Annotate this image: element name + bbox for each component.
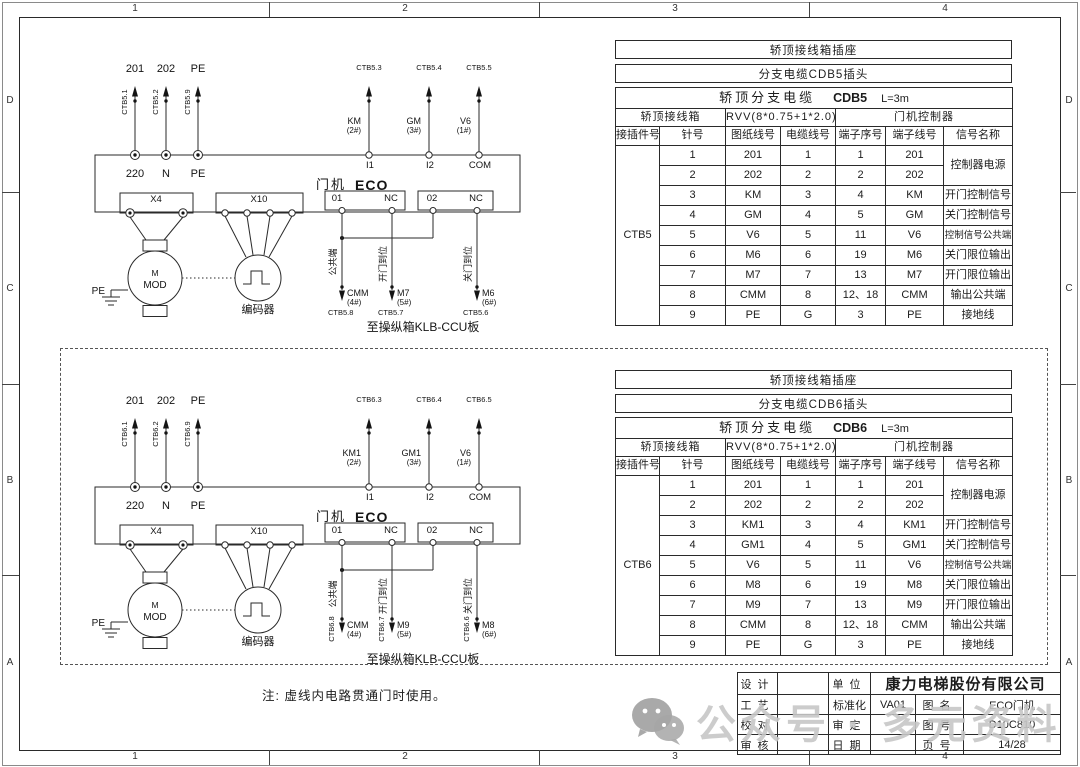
signal-pin: (3#)	[407, 126, 422, 135]
relay-terminal-label: 02	[427, 525, 438, 536]
output-pin: (5#)	[397, 630, 412, 639]
banner-plug: 分支电缆CDB5插头	[615, 64, 1012, 83]
usage-note: 注: 虚线内电路贯通门时使用。	[262, 685, 446, 704]
wire-id: CTB5.8	[328, 308, 353, 317]
table-cell: GM	[886, 206, 944, 226]
signal-label: GM	[407, 116, 422, 126]
table-cell: GM1	[726, 536, 781, 556]
input-terminal-label: I2	[426, 160, 434, 171]
zone-label: 1	[125, 3, 145, 14]
group-header: 门机控制器	[836, 439, 1013, 457]
table-cell: V6	[886, 226, 944, 246]
encoder-label: 编码器	[242, 302, 275, 316]
output-label: M7	[397, 288, 410, 298]
col-header: 图纸线号	[726, 457, 781, 476]
zone-label: 3	[665, 751, 685, 762]
table-cell: 6	[660, 246, 726, 266]
table-cell: KM	[726, 186, 781, 206]
cdb5-wiring-table: 轿顶分支电缆CDB5L=3m 轿顶接线箱 RVV(8*0.75+1*2.0) 门…	[615, 87, 1013, 326]
wire-id: CTB6.7	[377, 616, 386, 641]
cable-length: L=3m	[881, 423, 909, 435]
table-row: CTB5 1 201 1 1 201 控制器电源	[616, 146, 1013, 166]
table-cell: M7	[886, 266, 944, 286]
table-cell: 3	[836, 306, 886, 326]
table-cell: 2	[781, 496, 836, 516]
input-terminal-label: I2	[426, 492, 434, 503]
cable-length: L=3m	[881, 93, 909, 105]
up-arrow-icon	[195, 86, 201, 97]
field-value	[778, 735, 829, 755]
signal-label: V6	[460, 116, 471, 126]
col-header: 端子序号	[836, 457, 886, 476]
table-cell: 7	[660, 266, 726, 286]
connector-label: X4	[150, 194, 162, 205]
table-cell: M9	[886, 596, 944, 616]
table-cell: GM	[726, 206, 781, 226]
wire-id: CTB6.3	[356, 395, 381, 404]
drawing-name: ECO门机	[964, 695, 1061, 715]
motor-label: M	[151, 268, 158, 278]
table-cell: M6	[726, 246, 781, 266]
group-header: RVV(8*0.75+1*2.0)	[726, 439, 836, 457]
col-header: 针号	[660, 457, 726, 476]
signal-name-cell: 控制信号公共端	[944, 556, 1013, 576]
signal-name-cell: 关门控制信号	[944, 206, 1013, 226]
power-label: PE	[191, 395, 206, 407]
table-cell: 202	[886, 496, 944, 516]
function-label: 公共端	[327, 248, 338, 275]
table-title: 轿顶分支电缆	[719, 420, 815, 435]
col-header: 接插件号	[616, 127, 660, 146]
pe-label: PE	[92, 286, 106, 297]
signal-pin: (2#)	[347, 458, 362, 467]
relay-terminal-label: NC	[469, 525, 483, 536]
signal-label: KM1	[342, 448, 361, 458]
motor-model: MOD	[143, 280, 166, 291]
zone-tick	[2, 575, 19, 576]
field-value	[778, 715, 829, 735]
output-pin: (4#)	[347, 298, 362, 307]
encoder-icon	[225, 548, 292, 633]
signal-name-cell: 输出公共端	[944, 616, 1013, 636]
wire-id: CTB6.8	[327, 616, 336, 641]
machine-name: 门机	[316, 509, 346, 524]
cable-code: CDB5	[833, 91, 867, 105]
caption: 至操纵箱KLB-CCU板	[367, 319, 480, 334]
terminal-label: N	[162, 168, 170, 180]
table-cell: PE	[886, 306, 944, 326]
signal-name-cell: 开门限位输出	[944, 266, 1013, 286]
table-cell: 1	[781, 146, 836, 166]
field-label: 图名	[916, 695, 964, 715]
table-row: 8 CMM 8 12、18 CMM 输出公共端	[616, 616, 1013, 636]
up-arrow-icon	[426, 86, 432, 97]
table-cell: 201	[726, 476, 781, 496]
connector-label: X10	[251, 526, 268, 537]
table-cell: 6	[781, 246, 836, 266]
up-arrow-icon	[195, 418, 201, 429]
function-label: 开门到位	[377, 246, 388, 282]
col-header: 信号名称	[944, 127, 1013, 146]
banner-socket: 轿顶接线箱插座	[615, 370, 1012, 389]
wire-id: CTB5.7	[378, 308, 403, 317]
table-cell: 5	[836, 206, 886, 226]
table-cell: G	[781, 636, 836, 656]
table-cell: 3	[836, 636, 886, 656]
cable-code: CDB6	[833, 421, 867, 435]
input-terminal-label: I1	[366, 492, 374, 503]
table-cell: 8	[660, 616, 726, 636]
ground-icon	[102, 622, 128, 637]
machine-name: 门机	[316, 177, 346, 192]
table-row: 7 M9 7 13 M9 开门限位输出	[616, 596, 1013, 616]
signal-pin: (1#)	[457, 126, 472, 135]
function-label: 公共端	[327, 580, 338, 607]
zone-tick	[809, 2, 810, 17]
engineering-drawing-page: 1 2 3 4 1 2 3 4 D C B A D C B A 201 202 …	[0, 0, 1080, 767]
wire-id: CTB6.2	[151, 421, 160, 446]
zone-label: C	[1059, 283, 1079, 294]
table-cell: M9	[726, 596, 781, 616]
zone-label: 1	[125, 751, 145, 762]
signal-name-cell: 关门控制信号	[944, 536, 1013, 556]
signal-name-cell: 控制器电源	[944, 146, 1013, 186]
signal-name-cell: 控制器电源	[944, 476, 1013, 516]
wire-id: CTB6.5	[466, 395, 491, 404]
zone-label: A	[1059, 657, 1079, 668]
signal-label: GM1	[401, 448, 421, 458]
table-cell: 3	[660, 516, 726, 536]
table-row: 4 GM 4 5 GM 关门控制信号	[616, 206, 1013, 226]
table-cell: KM1	[726, 516, 781, 536]
field-value	[778, 673, 829, 695]
terminal-label: PE	[191, 500, 206, 512]
col-header: 针号	[660, 127, 726, 146]
table-cell: 201	[726, 146, 781, 166]
up-arrow-icon	[426, 418, 432, 429]
connector-label: X4	[150, 526, 162, 537]
signal-pin: (1#)	[457, 458, 472, 467]
col-header: 电缆线号	[781, 127, 836, 146]
title-block: 设计 单位 康力电梯股份有限公司 工艺 标准化 VA01 图名 ECO门机 校对…	[737, 672, 1061, 755]
zone-tick	[269, 2, 270, 17]
table-cell: 2	[660, 166, 726, 186]
table-cell: 1	[836, 476, 886, 496]
table-cell: 11	[836, 556, 886, 576]
table-cell: CMM	[886, 286, 944, 306]
table-cell: PE	[726, 636, 781, 656]
table-cell: V6	[886, 556, 944, 576]
table-row: 5 V6 5 11 V6 控制信号公共端	[616, 556, 1013, 576]
input-terminal-label: I1	[366, 160, 374, 171]
power-label: 202	[157, 63, 175, 75]
cdb5-table-group: 轿顶接线箱插座 分支电缆CDB5插头 轿顶分支电缆CDB5L=3m 轿顶接线箱 …	[615, 40, 1012, 326]
field-label: 审核	[738, 735, 778, 755]
output-label: M8	[482, 620, 495, 630]
signal-name-cell: 控制信号公共端	[944, 226, 1013, 246]
zone-tick	[1060, 384, 1076, 385]
table-row: 3 KM 3 4 KM 开门控制信号	[616, 186, 1013, 206]
up-arrow-icon	[132, 86, 138, 97]
table-row: 6 M6 6 19 M6 关门限位输出	[616, 246, 1013, 266]
field-value: VA01	[871, 695, 916, 715]
terminal-label: 220	[126, 500, 144, 512]
motor-model: MOD	[143, 612, 166, 623]
field-label: 设计	[738, 673, 778, 695]
table-cell: 1	[660, 476, 726, 496]
table-cell: 5	[781, 556, 836, 576]
table-cell: 13	[836, 266, 886, 286]
relay-terminal-label: NC	[469, 193, 483, 204]
zone-label: 2	[395, 3, 415, 14]
table-cell: 1	[660, 146, 726, 166]
table-row: 8 CMM 8 12、18 CMM 输出公共端	[616, 286, 1013, 306]
table-cell: 8	[781, 286, 836, 306]
table-row: 4 GM1 4 5 GM1 关门控制信号	[616, 536, 1013, 556]
field-value	[778, 695, 829, 715]
motor-icon	[128, 217, 183, 317]
power-label: 201	[126, 395, 144, 407]
col-header: 端子序号	[836, 127, 886, 146]
wiring-diagram-cdb6: 201 202 PE CTB6.1 CTB6.2 CTB6.9 220 N PE…	[55, 382, 545, 674]
relay-terminal-label: 02	[427, 193, 438, 204]
group-header: 轿顶接线箱	[616, 109, 726, 127]
down-arrow-icon	[389, 291, 395, 302]
up-arrow-icon	[366, 86, 372, 97]
signal-name-cell: 开门控制信号	[944, 186, 1013, 206]
field-label: 页号	[916, 735, 964, 755]
table-cell: PE	[886, 636, 944, 656]
banner-plug: 分支电缆CDB6插头	[615, 394, 1012, 413]
down-arrow-icon	[339, 623, 345, 634]
zone-label: A	[0, 657, 20, 668]
caption: 至操纵箱KLB-CCU板	[367, 651, 480, 666]
table-cell: 4	[660, 536, 726, 556]
table-cell: 8	[660, 286, 726, 306]
cdb6-wiring-table: 轿顶分支电缆CDB6L=3m 轿顶接线箱 RVV(8*0.75+1*2.0) 门…	[615, 417, 1013, 656]
company-name: 康力电梯股份有限公司	[871, 673, 1061, 695]
table-cell: 202	[726, 166, 781, 186]
table-cell: KM1	[886, 516, 944, 536]
zone-label: B	[1059, 475, 1079, 486]
encoder-icon	[225, 216, 292, 301]
signal-label: V6	[460, 448, 471, 458]
zone-label: 3	[665, 3, 685, 14]
down-arrow-icon	[339, 291, 345, 302]
table-cell: 2	[781, 166, 836, 186]
table-cell: 8	[781, 616, 836, 636]
zone-tick	[2, 384, 19, 385]
signal-name-cell: 关门限位输出	[944, 246, 1013, 266]
connector-id-cell: CTB5	[616, 146, 660, 326]
function-label: 关门到位	[462, 246, 473, 282]
table-cell: 201	[886, 476, 944, 496]
down-arrow-icon	[474, 291, 480, 302]
col-header: 端子线号	[886, 127, 944, 146]
zone-label: D	[1059, 95, 1079, 106]
output-label: CMM	[347, 288, 369, 298]
zone-label: B	[0, 475, 20, 486]
table-row: 9 PE G 3 PE 接地线	[616, 636, 1013, 656]
table-cell: 13	[836, 596, 886, 616]
table-cell: 4	[781, 536, 836, 556]
field-label: 工艺	[738, 695, 778, 715]
table-cell: KM	[886, 186, 944, 206]
zone-label: 2	[395, 751, 415, 762]
table-cell: 3	[781, 516, 836, 536]
table-row: CTB6 1 201 1 1 201 控制器电源	[616, 476, 1013, 496]
page-number: 14/28	[964, 735, 1061, 755]
col-header: 接插件号	[616, 457, 660, 476]
table-cell: 12、18	[836, 616, 886, 636]
wire-id: CTB5.5	[466, 63, 491, 72]
table-title-cell: 轿顶分支电缆CDB6L=3m	[616, 418, 1013, 439]
table-row: 7 M7 7 13 M7 开门限位输出	[616, 266, 1013, 286]
signal-name-cell: 开门限位输出	[944, 596, 1013, 616]
relay-terminal-label: NC	[384, 525, 398, 536]
table-cell: 6	[660, 576, 726, 596]
table-cell: 19	[836, 576, 886, 596]
up-arrow-icon	[163, 86, 169, 97]
zone-tick	[539, 2, 540, 17]
power-label: 201	[126, 63, 144, 75]
group-header: 轿顶接线箱	[616, 439, 726, 457]
table-cell: CMM	[726, 286, 781, 306]
table-cell: 9	[660, 306, 726, 326]
output-label: M6	[482, 288, 495, 298]
wire-id: CTB5.1	[120, 89, 129, 114]
relay-terminal-label: 01	[332, 525, 343, 536]
ground-icon	[102, 290, 128, 305]
field-value	[871, 715, 916, 735]
table-cell: 4	[660, 206, 726, 226]
col-header: 图纸线号	[726, 127, 781, 146]
table-cell: 2	[836, 496, 886, 516]
table-cell: GM1	[886, 536, 944, 556]
motor-label: M	[151, 600, 158, 610]
field-label: 标准化	[829, 695, 871, 715]
output-pin: (5#)	[397, 298, 412, 307]
signal-label: KM	[348, 116, 362, 126]
wire-id: CTB6.1	[120, 421, 129, 446]
table-cell: 5	[836, 536, 886, 556]
function-label: 开门到位	[377, 578, 388, 614]
zone-tick	[269, 750, 270, 765]
field-label: 审定	[829, 715, 871, 735]
up-arrow-icon	[476, 86, 482, 97]
down-arrow-icon	[389, 623, 395, 634]
down-arrow-icon	[474, 623, 480, 634]
zone-label: C	[0, 283, 20, 294]
up-arrow-icon	[366, 418, 372, 429]
up-arrow-icon	[132, 418, 138, 429]
table-cell: M8	[886, 576, 944, 596]
output-pin: (4#)	[347, 630, 362, 639]
connector-id-cell: CTB6	[616, 476, 660, 656]
table-cell: 4	[836, 186, 886, 206]
terminal-label: PE	[191, 168, 206, 180]
zone-tick	[539, 750, 540, 765]
table-cell: 11	[836, 226, 886, 246]
table-title-cell: 轿顶分支电缆CDB5L=3m	[616, 88, 1013, 109]
table-row: 5 V6 5 11 V6 控制信号公共端	[616, 226, 1013, 246]
table-cell: 1	[836, 146, 886, 166]
wire-id: CTB6.9	[183, 421, 192, 446]
table-row: 9 PE G 3 PE 接地线	[616, 306, 1013, 326]
table-cell: 9	[660, 636, 726, 656]
signal-name-cell: 接地线	[944, 306, 1013, 326]
power-label: PE	[191, 63, 206, 75]
table-cell: 19	[836, 246, 886, 266]
wiring-diagram-cdb5: 201 202 PE CTB5.1 CTB5.2 CTB5.9 220 N PE…	[55, 50, 545, 342]
wire-id: CTB5.9	[183, 89, 192, 114]
zone-tick	[1060, 575, 1076, 576]
signal-pin: (3#)	[407, 458, 422, 467]
table-title: 轿顶分支电缆	[719, 90, 815, 105]
table-cell: 7	[781, 596, 836, 616]
table-cell: CMM	[886, 616, 944, 636]
up-arrow-icon	[163, 418, 169, 429]
table-cell: CMM	[726, 616, 781, 636]
table-cell: 201	[886, 146, 944, 166]
output-label: M9	[397, 620, 410, 630]
input-terminal-label: COM	[469, 492, 491, 503]
table-cell: G	[781, 306, 836, 326]
table-cell: PE	[726, 306, 781, 326]
table-cell: 3	[781, 186, 836, 206]
table-cell: 2	[836, 166, 886, 186]
table-cell: 7	[660, 596, 726, 616]
signal-name-cell: 输出公共端	[944, 286, 1013, 306]
pe-label: PE	[92, 618, 106, 629]
field-label: 校对	[738, 715, 778, 735]
wire-id: CTB5.6	[463, 308, 488, 317]
wire-id: CTB5.2	[151, 89, 160, 114]
signal-pin: (2#)	[347, 126, 362, 135]
table-cell: 7	[781, 266, 836, 286]
group-header: 门机控制器	[836, 109, 1013, 127]
field-label: 日期	[829, 735, 871, 755]
table-cell: 202	[886, 166, 944, 186]
output-pin: (6#)	[482, 298, 497, 307]
function-label: 关门到位	[462, 578, 473, 614]
motor-icon	[128, 549, 183, 649]
wire-id: CTB5.3	[356, 63, 381, 72]
wire-id: CTB5.4	[416, 63, 441, 72]
field-label: 单位	[829, 673, 871, 695]
output-pin: (6#)	[482, 630, 497, 639]
zone-tick	[1060, 192, 1076, 193]
table-cell: 4	[781, 206, 836, 226]
relay-terminal-label: 01	[332, 193, 343, 204]
signal-name-cell: 关门限位输出	[944, 576, 1013, 596]
zone-label: 4	[935, 3, 955, 14]
table-cell: 5	[660, 226, 726, 246]
table-cell: 6	[781, 576, 836, 596]
terminal-label: 220	[126, 168, 144, 180]
table-cell: 12、18	[836, 286, 886, 306]
table-cell: 202	[726, 496, 781, 516]
group-header: RVV(8*0.75+1*2.0)	[726, 109, 836, 127]
signal-name-cell: 开门控制信号	[944, 516, 1013, 536]
connector-label: X10	[251, 194, 268, 205]
table-cell: 3	[660, 186, 726, 206]
wire-id: CTB6.6	[462, 616, 471, 641]
field-value	[871, 735, 916, 755]
table-cell: M6	[886, 246, 944, 266]
relay-terminal-label: NC	[384, 193, 398, 204]
field-label: 图号	[916, 715, 964, 735]
